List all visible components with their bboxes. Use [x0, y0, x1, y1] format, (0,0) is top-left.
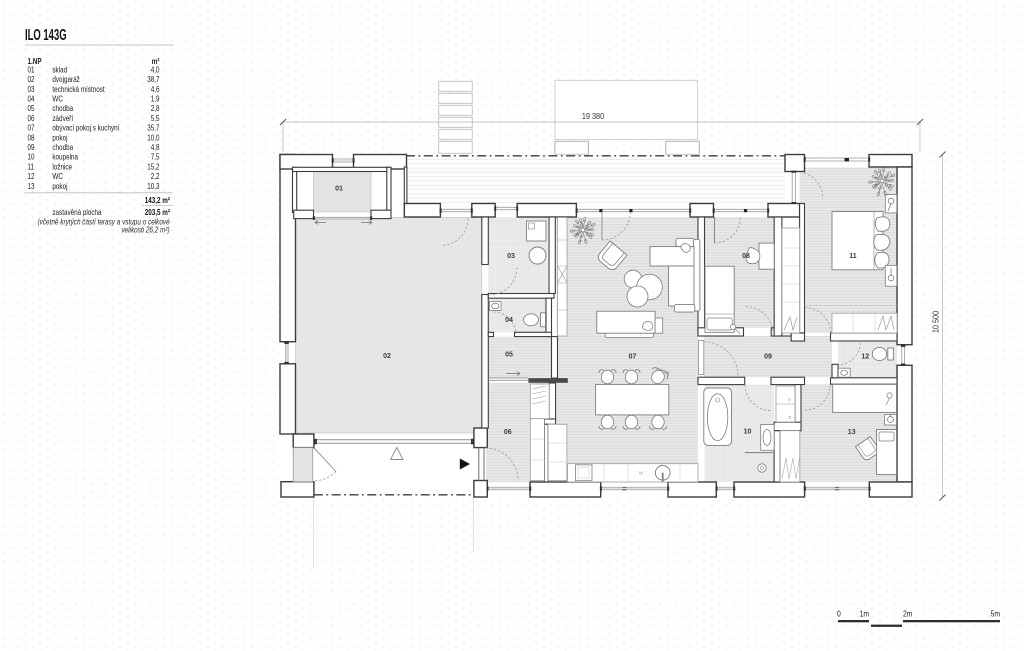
svg-text:velikosti 26,2 m²): velikosti 26,2 m²) [121, 225, 169, 235]
svg-text:WC: WC [52, 172, 63, 181]
svg-text:05: 05 [505, 352, 513, 359]
svg-text:06: 06 [28, 114, 35, 123]
svg-text:1m: 1m [860, 609, 869, 619]
svg-text:02: 02 [28, 75, 35, 84]
svg-text:7,5: 7,5 [151, 153, 160, 162]
svg-text:koupelna: koupelna [52, 153, 78, 162]
svg-text:P: P [787, 416, 792, 419]
svg-text:2m: 2m [903, 609, 912, 619]
svg-text:07: 07 [629, 354, 637, 361]
svg-text:06: 06 [504, 429, 512, 436]
svg-text:sklad: sklad [52, 66, 67, 75]
svg-text:12: 12 [28, 172, 35, 181]
svg-text:08: 08 [28, 134, 35, 143]
svg-text:4,8: 4,8 [151, 143, 160, 152]
svg-text:ložnice: ložnice [52, 163, 72, 172]
svg-text:19 380: 19 380 [582, 111, 605, 121]
svg-text:10: 10 [744, 429, 752, 436]
svg-text:143,2 m²: 143,2 m² [145, 196, 171, 205]
svg-text:01: 01 [335, 186, 343, 193]
svg-text:203,5 m²: 203,5 m² [145, 208, 171, 217]
svg-text:chodba: chodba [52, 143, 73, 152]
svg-text:04: 04 [505, 317, 513, 324]
svg-text:zastavěná plocha: zastavěná plocha [52, 208, 101, 217]
svg-text:01: 01 [28, 66, 35, 75]
svg-text:03: 03 [507, 253, 515, 260]
svg-text:12: 12 [861, 354, 869, 361]
svg-text:08: 08 [742, 253, 750, 260]
svg-text:05: 05 [28, 105, 35, 114]
svg-text:10,3: 10,3 [147, 182, 159, 191]
svg-text:chodba: chodba [52, 105, 73, 114]
svg-text:38,7: 38,7 [147, 75, 159, 84]
svg-text:0: 0 [837, 609, 841, 619]
svg-text:02: 02 [383, 353, 391, 360]
svg-text:10,0: 10,0 [147, 134, 159, 143]
svg-text:obývací pokoj s kuchyní: obývací pokoj s kuchyní [52, 124, 119, 133]
svg-text:11: 11 [849, 253, 857, 260]
svg-text:zádveří: zádveří [52, 114, 73, 123]
svg-text:15,2: 15,2 [147, 163, 159, 172]
svg-text:pokoj: pokoj [52, 182, 67, 191]
svg-text:5m: 5m [991, 609, 1000, 619]
svg-text:4,0: 4,0 [151, 66, 160, 75]
svg-text:03: 03 [28, 85, 35, 94]
svg-text:10: 10 [28, 153, 35, 162]
svg-text:09: 09 [764, 354, 772, 361]
svg-text:35,7: 35,7 [147, 124, 159, 133]
svg-text:S: S [787, 398, 792, 401]
svg-text:technická místnost: technická místnost [52, 85, 104, 94]
svg-text:13: 13 [848, 429, 856, 436]
svg-text:10 500: 10 500 [931, 310, 941, 333]
svg-text:M: M [639, 471, 643, 477]
svg-text:07: 07 [28, 124, 35, 133]
svg-text:09: 09 [28, 143, 35, 152]
svg-text:4,6: 4,6 [151, 85, 160, 94]
svg-text:13: 13 [28, 182, 35, 191]
svg-text:pokoj: pokoj [52, 134, 67, 143]
svg-text:5,5: 5,5 [151, 114, 160, 123]
svg-text:2,2: 2,2 [151, 172, 160, 181]
svg-text:1,9: 1,9 [151, 95, 160, 104]
svg-text:2,8: 2,8 [151, 105, 160, 114]
svg-text:WC: WC [52, 95, 63, 104]
svg-text:dvojgaráž: dvojgaráž [52, 75, 80, 84]
svg-text:ILO 143G: ILO 143G [25, 25, 67, 43]
svg-text:11: 11 [28, 163, 35, 172]
svg-text:04: 04 [28, 95, 35, 104]
